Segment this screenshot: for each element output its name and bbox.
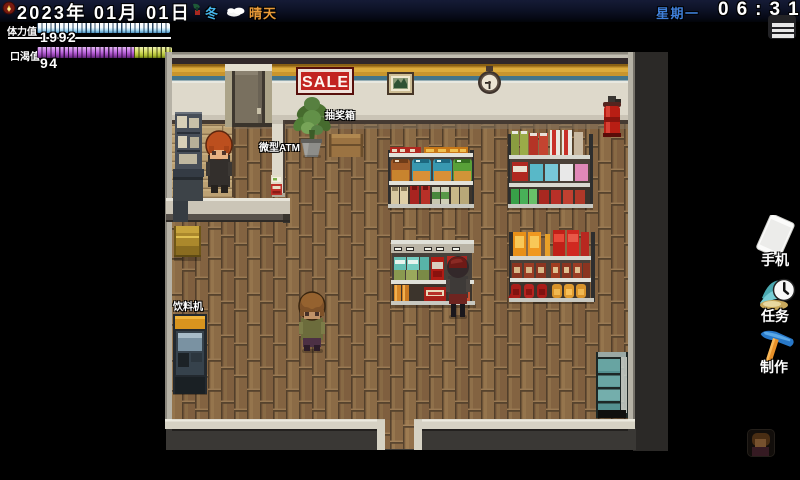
svg-text:SALE: SALE (302, 74, 348, 91)
